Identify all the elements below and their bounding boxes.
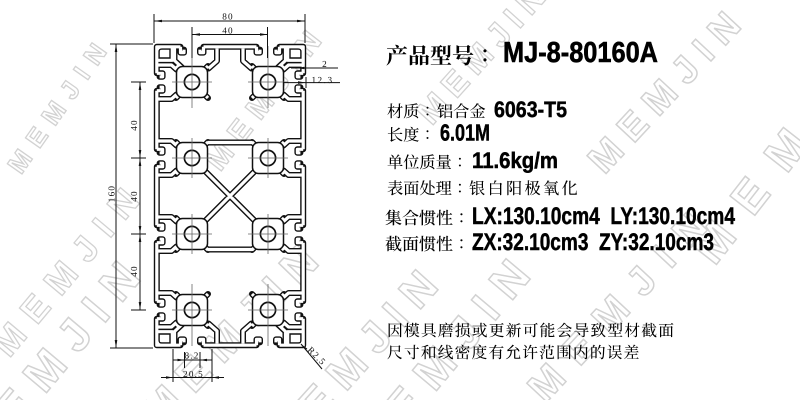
- svg-text:8.2: 8.2: [184, 351, 199, 361]
- svg-text:12.3: 12.3: [311, 75, 333, 85]
- svg-text:160: 160: [107, 185, 117, 202]
- svg-text:2: 2: [322, 59, 328, 69]
- svg-text:MJ-8-80160A: MJ-8-80160A: [503, 37, 658, 69]
- svg-text:40: 40: [222, 26, 234, 36]
- svg-text:40: 40: [129, 190, 139, 202]
- svg-text:6063-T5: 6063-T5: [494, 97, 567, 122]
- svg-text:ZX:32.10cm3 ZY:32.10cm3: ZX:32.10cm3 ZY:32.10cm3: [472, 229, 714, 256]
- svg-text:40: 40: [129, 265, 139, 277]
- svg-text:20.5: 20.5: [183, 369, 204, 379]
- svg-text:80: 80: [222, 12, 234, 22]
- svg-text:40: 40: [129, 119, 139, 131]
- svg-text:LX:130.10cm4 LY:130.10cm4: LX:130.10cm4 LY:130.10cm4: [472, 203, 736, 230]
- svg-text:6.01M: 6.01M: [440, 120, 490, 146]
- svg-text:11.6kg/m: 11.6kg/m: [472, 148, 558, 173]
- svg-text:R2.5: R2.5: [306, 345, 328, 367]
